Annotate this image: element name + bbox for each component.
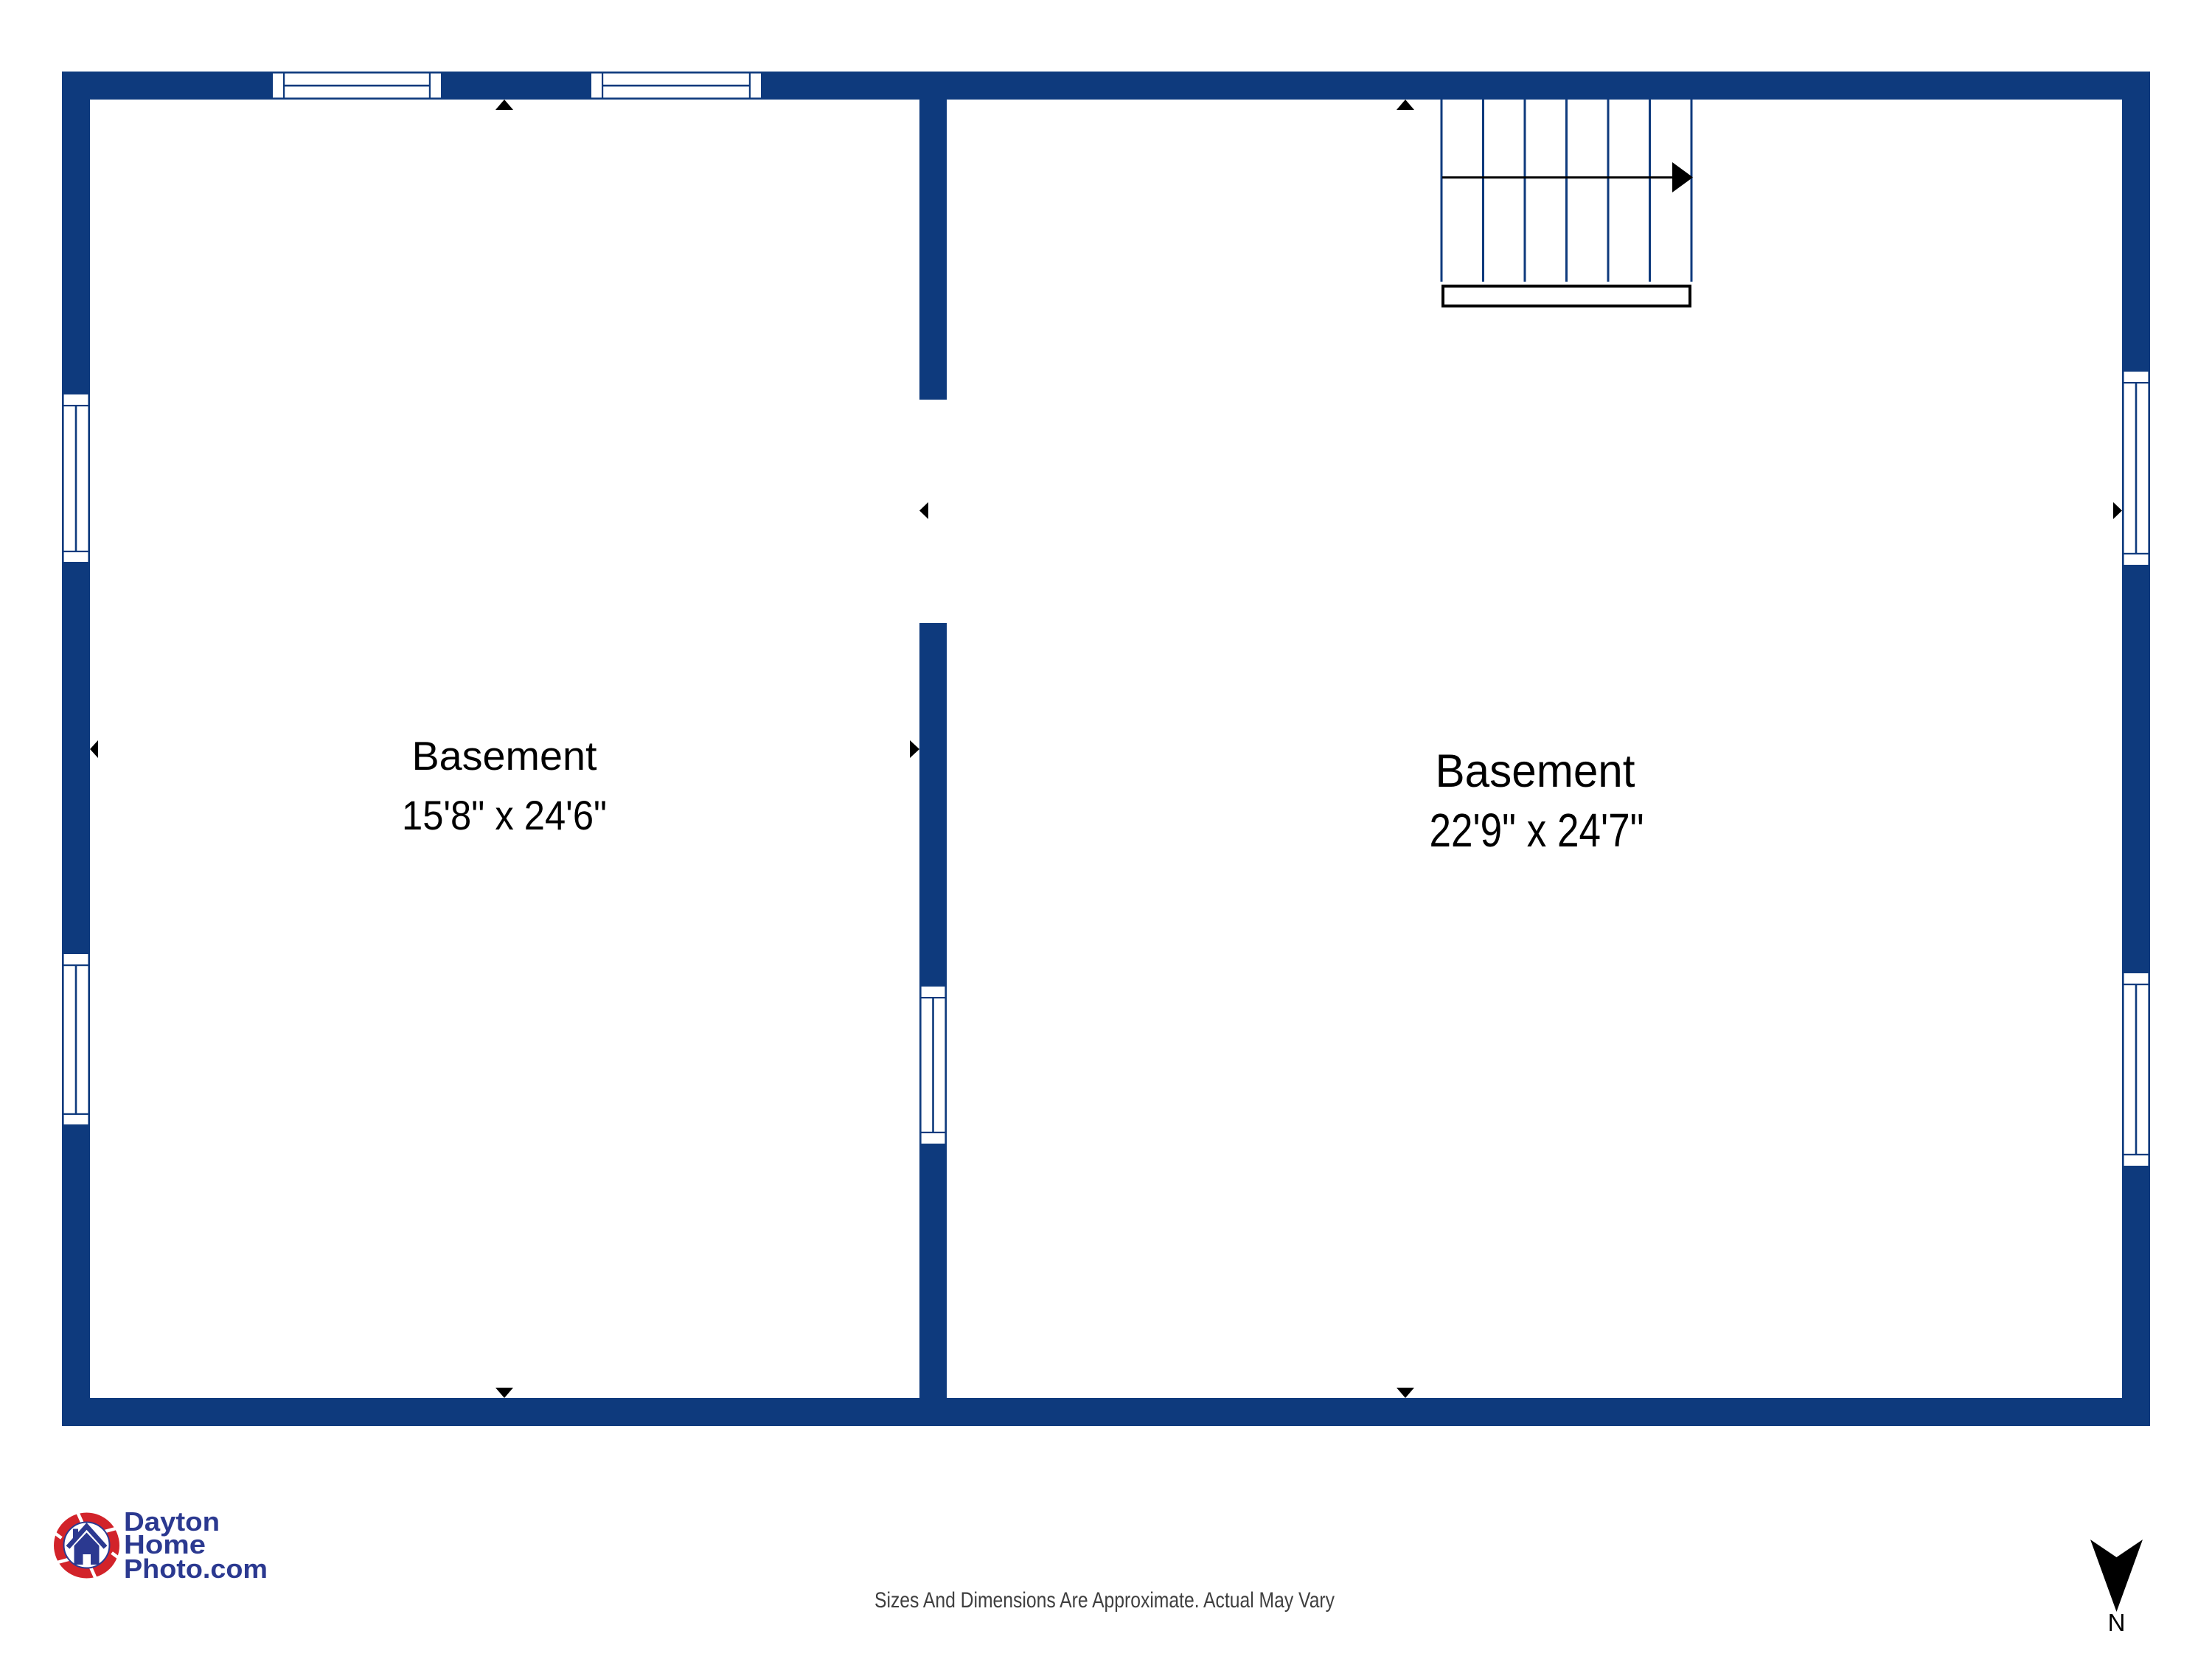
svg-text:Photo.com: Photo.com — [124, 1554, 268, 1584]
svg-text:15'8" x 24'6": 15'8" x 24'6" — [402, 792, 607, 838]
svg-text:Sizes And Dimensions Are Appro: Sizes And Dimensions Are Approximate. Ac… — [874, 1588, 1335, 1613]
svg-text:22'9" x 24'7": 22'9" x 24'7" — [1430, 804, 1644, 857]
svg-text:Basement: Basement — [412, 733, 597, 779]
svg-text:N: N — [2108, 1609, 2126, 1636]
svg-text:Basement: Basement — [1436, 745, 1635, 797]
